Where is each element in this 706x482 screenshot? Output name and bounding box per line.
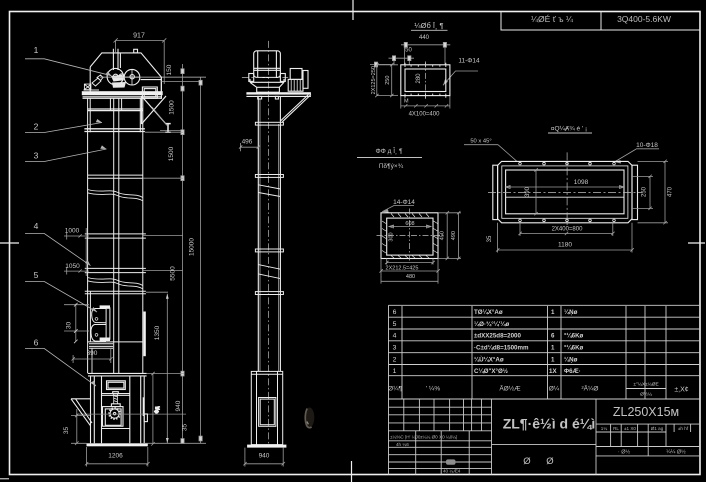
svg-text:496: 496 [242,139,253,146]
svg-text:¼Ņø: ¼Ņø [564,356,578,363]
svg-text:1¼: 1¼ [601,426,608,431]
svg-text:480: 480 [406,274,415,280]
svg-text:M: M [404,99,409,105]
svg-text:5500: 5500 [170,266,177,281]
svg-text:°¼6Kø: °¼6Kø [564,345,584,352]
svg-text:4: 4 [393,333,397,340]
svg-text:35: 35 [182,424,189,432]
svg-text:2: 2 [393,356,397,363]
svg-text:940: 940 [175,400,182,411]
svg-text:¼ØÉ ť ъ ¼: ¼ØÉ ť ъ ¼ [531,14,574,24]
svg-text:6: 6 [551,333,555,340]
svg-text:±h hf: ±h hf [678,426,689,431]
svg-text:5: 5 [34,270,39,280]
svg-text:2X212.5=425: 2X212.5=425 [386,265,419,271]
svg-text:1X: 1X [549,368,557,375]
svg-text:1098: 1098 [574,179,589,186]
svg-text:15000: 15000 [189,238,196,256]
svg-text:1: 1 [551,356,555,363]
svg-text:940: 940 [259,453,270,460]
svg-text:1: 1 [551,309,555,316]
svg-text:450: 450 [440,231,446,240]
svg-text:3Q400-5.6KW: 3Q400-5.6KW [617,14,671,24]
svg-text:390: 390 [87,350,98,357]
svg-text:30: 30 [66,322,73,330]
svg-text:390: 390 [525,186,531,197]
svg-text:Πδ¶ý×¾: Πδ¶ý×¾ [379,163,404,170]
svg-text:1: 1 [34,45,39,55]
svg-text:' ¼%: ' ¼% [426,386,440,393]
svg-text:ÃØ½Æ: ÃØ½Æ [499,384,521,393]
svg-text:6: 6 [393,309,397,316]
svg-text:10-Φ18: 10-Φ18 [636,142,658,149]
svg-text:2X125=250: 2X125=250 [371,66,377,94]
svg-text:35: 35 [487,235,493,242]
svg-text:5: 5 [393,321,397,328]
svg-text:ΦΦ д Ī¸ ¶: ΦΦ д Ī¸ ¶ [375,147,403,155]
svg-text:· Ø½: · Ø½ [618,449,631,456]
svg-text:917: 917 [133,33,145,40]
svg-text:±dXX25d8=2000: ±dXX25d8=2000 [474,333,521,340]
svg-text:1: 1 [551,345,555,352]
svg-text:¼¼ Ø½: ¼¼ Ø½ [666,449,686,456]
svg-text:250: 250 [385,76,391,85]
svg-text:Ø½¼: Ø½¼ [640,391,653,398]
svg-text:±°¼X±¼ØE: ±°¼X±¼ØE [633,382,658,388]
svg-text:ZL¶·ê½ì d é¼ì: ZL¶·ê½ì d é¼ì [503,416,596,432]
svg-text:14-Φ14: 14-Φ14 [393,199,415,206]
svg-text:Φ6Æ·: Φ6Æ· [564,368,581,375]
svg-text:11-Φ14: 11-Φ14 [458,58,480,65]
svg-text:50: 50 [405,48,412,54]
svg-text:¼Ņø: ¼Ņø [564,309,578,316]
svg-text:¼Øб Ī¸ ¶: ¼Øб Ī¸ ¶ [414,21,443,30]
svg-text:2: 2 [34,122,39,132]
svg-text:TØ¼X°Aø: TØ¼X°Aø [474,309,503,316]
svg-text:¼Ø·¾°¼'¼ø: ¼Ø·¾°¼'¼ø [474,321,509,328]
svg-text:±1 X0: ±1 X0 [624,426,636,431]
svg-text:Ø¼¶: Ø¼¶ [388,386,402,393]
svg-text:2X400=800: 2X400=800 [552,227,584,233]
svg-text:²Ã¼Ø: ²Ã¼Ø [582,384,599,393]
svg-text:35: 35 [63,427,70,435]
svg-text:±¼%C |H' ¼J0z¼¼ Ø0 X0 ¼0¼|: ±¼%C |H' ¼J0z¼¼ Ø0 X0 ¼0¼| [390,435,457,440]
svg-text:1: 1 [393,368,397,375]
svg-text:250: 250 [642,186,648,197]
svg-text:300: 300 [389,232,395,241]
svg-text:RL: RL [613,426,619,431]
svg-text:¤Q¼Ⱥ¾ é ' ¡: ¤Q¼Ⱥ¾ é ' ¡ [551,126,587,133]
svg-text:280: 280 [416,73,422,84]
svg-text:Ø: Ø [546,456,554,467]
svg-text:Ø¼: Ø¼ [549,386,560,393]
svg-text:3: 3 [34,151,39,161]
svg-text:C¼Ø"X°Ø½: C¼Ø"X°Ø½ [474,368,508,375]
svg-text:1050: 1050 [65,263,80,270]
svg-text:150: 150 [166,64,173,75]
svg-text:Ø1 ag: Ø1 ag [651,426,664,431]
svg-text:470: 470 [668,186,674,197]
svg-text:¼Ù¼X°Aø: ¼Ù¼X°Aø [474,356,504,363]
svg-text:3: 3 [393,345,397,352]
svg-text:490: 490 [451,231,457,240]
svg-text:1180: 1180 [558,242,572,249]
svg-text:1000: 1000 [65,228,80,235]
svg-text:°¼6Kø: °¼6Kø [564,333,584,340]
svg-text:608: 608 [405,221,414,227]
svg-text:1500: 1500 [169,100,176,115]
svg-text:Φд: Φд [155,406,161,413]
svg-text:4X100=400: 4X100=400 [409,112,441,118]
svg-text:Ø: Ø [523,456,531,467]
svg-text:4: 4 [34,221,39,231]
svg-text:1350: 1350 [154,325,161,340]
svg-text:1206: 1206 [108,453,123,460]
svg-text:·C±d¼d8=1500mm: ·C±d¼d8=1500mm [474,345,529,352]
svg-text:±,X¢: ±,X¢ [674,387,688,394]
svg-text:50 x 45°: 50 x 45° [470,138,491,144]
svg-text:4h ¼6: 4h ¼6 [396,442,409,447]
svg-text:ZL250X15м: ZL250X15м [613,405,679,419]
svg-text:1500: 1500 [168,146,175,161]
svg-text:440: 440 [419,35,430,41]
svg-text:6: 6 [34,338,39,348]
svg-text:40 ¼Æ4: 40 ¼Æ4 [443,469,461,474]
